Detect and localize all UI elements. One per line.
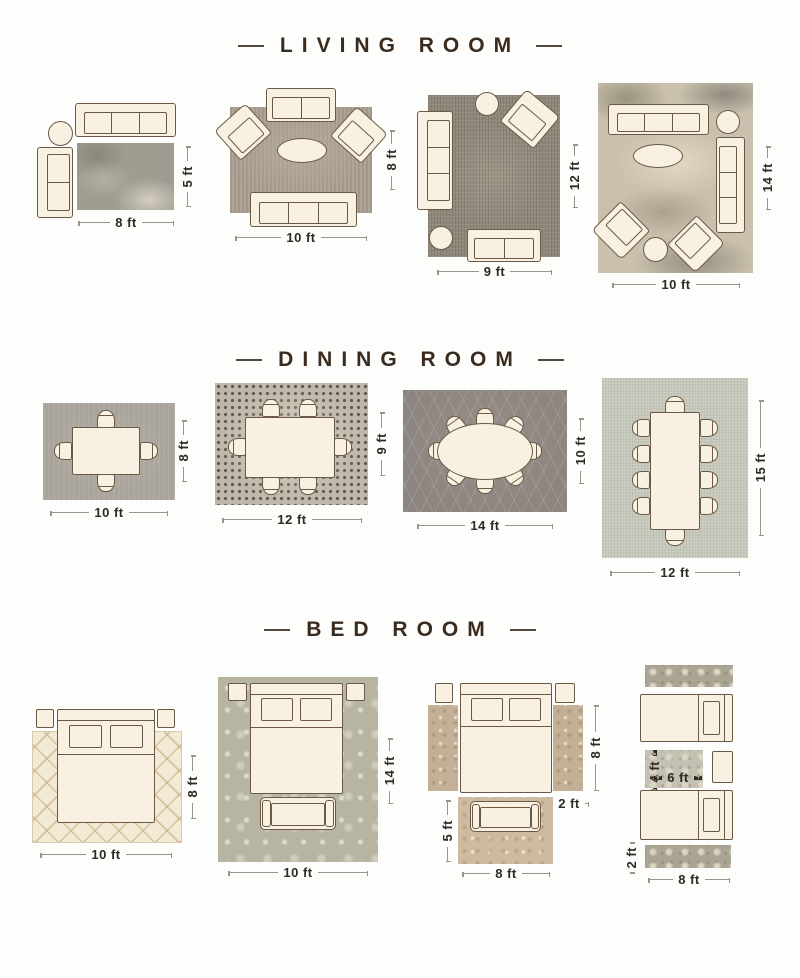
- width-dimension: 10 ft: [228, 865, 368, 880]
- living-rug-8x5: [77, 143, 174, 210]
- width-dimension: 10 ft: [40, 847, 172, 862]
- headboard: [251, 684, 342, 695]
- bench-icon: [260, 797, 336, 830]
- dining-chair-icon: [700, 471, 718, 489]
- pillow-icon: [509, 698, 541, 721]
- foot-rug-width-dimension: 8 ft: [462, 866, 550, 881]
- width-dimension: 10 ft: [235, 230, 367, 245]
- pillow-icon: [300, 698, 332, 721]
- twin-runner-rug: [645, 665, 733, 687]
- dining-chair-icon: [632, 445, 650, 463]
- dining-chair-icon: [632, 497, 650, 515]
- nightstand-icon: [555, 683, 575, 703]
- height-dimension: 8 ft: [176, 420, 191, 482]
- dining-table-icon: [72, 427, 140, 475]
- dining-table-icon: [245, 417, 335, 478]
- height-dimension: 8 ft: [384, 130, 399, 190]
- width-dimension: 12 ft: [610, 565, 740, 580]
- sofa-icon: [608, 104, 709, 135]
- nightstand-icon: [712, 751, 733, 783]
- oval-coffee-table-icon: [633, 144, 683, 168]
- loveseat-icon: [266, 88, 336, 122]
- between-rug-width-dimension: 6 ft: [654, 770, 702, 785]
- runner-width-dimension: 8 ft: [648, 872, 730, 887]
- loveseat-icon: [37, 147, 73, 218]
- oval-dining-table-icon: [437, 423, 533, 480]
- width-dimension: 10 ft: [612, 277, 740, 292]
- height-dimension: 14 ft: [760, 146, 775, 210]
- oval-coffee-table-icon: [277, 138, 327, 163]
- sofa-icon: [716, 137, 745, 233]
- foot-rug-height-dimension: 5 ft: [440, 800, 455, 862]
- pillow-icon: [703, 701, 720, 734]
- title-dash-right: [536, 45, 562, 47]
- height-dimension: 5 ft: [180, 146, 195, 207]
- headboard: [724, 695, 732, 741]
- height-dimension: 10 ft: [573, 418, 588, 484]
- dining-room-title: DINING ROOM: [0, 348, 800, 372]
- title-dash-right: [510, 629, 536, 631]
- section-title-text: DINING ROOM: [278, 348, 522, 372]
- dining-chair-icon: [262, 477, 280, 495]
- headboard: [724, 791, 732, 839]
- pillow-icon: [703, 798, 720, 833]
- height-dimension: 12 ft: [567, 144, 582, 208]
- twin-bed-icon: [640, 790, 733, 840]
- twin-runner-rug: [645, 845, 731, 868]
- round-side-table-icon: [716, 110, 740, 134]
- nightstand-icon: [36, 709, 54, 728]
- bed-icon: [250, 683, 343, 794]
- width-dimension: 14 ft: [417, 518, 553, 533]
- dining-chair-icon: [665, 529, 685, 546]
- dining-chair-icon: [97, 410, 115, 428]
- sofa-icon: [250, 192, 357, 227]
- title-dash-left: [236, 359, 262, 361]
- dining-chair-icon: [632, 419, 650, 437]
- bench-icon: [470, 801, 541, 832]
- dining-chair-icon: [299, 477, 317, 495]
- dining-chair-icon: [262, 399, 280, 417]
- round-side-table-icon: [429, 226, 453, 250]
- nightstand-icon: [346, 683, 365, 701]
- title-dash-left: [264, 629, 290, 631]
- section-title-text: LIVING ROOM: [280, 34, 520, 58]
- dining-chair-icon: [299, 399, 317, 417]
- nightstand-icon: [157, 709, 175, 728]
- dining-chair-icon: [140, 442, 158, 460]
- bed-icon: [460, 683, 552, 793]
- nightstand-icon: [435, 683, 453, 703]
- bed-room-title: BED ROOM: [0, 618, 800, 642]
- dining-chair-icon: [228, 438, 246, 456]
- loveseat-icon: [467, 229, 541, 262]
- dining-chair-icon: [700, 497, 718, 515]
- height-dimension: 9 ft: [374, 412, 389, 476]
- runner-height-dimension: 2 ft: [624, 842, 639, 870]
- dining-chair-icon: [700, 419, 718, 437]
- section-title-text: BED ROOM: [306, 618, 494, 642]
- sofa-icon: [417, 111, 453, 210]
- title-dash-left: [238, 45, 264, 47]
- width-dimension: 8 ft: [78, 215, 174, 230]
- width-dimension: 10 ft: [50, 505, 168, 520]
- runner-height-dimension: 8 ft: [588, 705, 603, 791]
- rug-size-guide-infographic: LIVING ROOM 8 ft 5 ft 10 ft 8 ft 9 ft 12…: [0, 0, 800, 978]
- bedside-runner-rug: [553, 705, 583, 791]
- width-dimension: 9 ft: [437, 264, 552, 279]
- round-side-table-icon: [643, 237, 668, 262]
- height-dimension: 8 ft: [185, 755, 200, 819]
- dining-chair-icon: [665, 396, 685, 413]
- bedside-runner-rug: [428, 705, 458, 791]
- pillow-icon: [261, 698, 293, 721]
- bed-icon: [57, 709, 155, 823]
- twin-bed-icon: [640, 694, 733, 742]
- width-dimension: 12 ft: [222, 512, 362, 527]
- height-dimension: 14 ft: [382, 738, 397, 804]
- runner-width-dimension: 2 ft: [549, 796, 589, 811]
- nightstand-icon: [228, 683, 247, 701]
- dining-chair-icon: [632, 471, 650, 489]
- living-room-title: LIVING ROOM: [0, 34, 800, 58]
- dining-chair-icon: [700, 445, 718, 463]
- title-dash-right: [538, 359, 564, 361]
- pillow-icon: [69, 725, 103, 748]
- dining-chair-icon: [97, 474, 115, 492]
- round-side-table-icon: [48, 121, 73, 146]
- headboard: [461, 684, 551, 695]
- dining-table-icon: [650, 412, 700, 530]
- round-side-table-icon: [475, 92, 499, 116]
- height-dimension: 15 ft: [753, 400, 768, 536]
- pillow-icon: [110, 725, 144, 748]
- dining-chair-icon: [334, 438, 352, 456]
- pillow-icon: [471, 698, 503, 721]
- dining-chair-icon: [54, 442, 72, 460]
- headboard: [58, 710, 154, 721]
- sofa-icon: [75, 103, 176, 137]
